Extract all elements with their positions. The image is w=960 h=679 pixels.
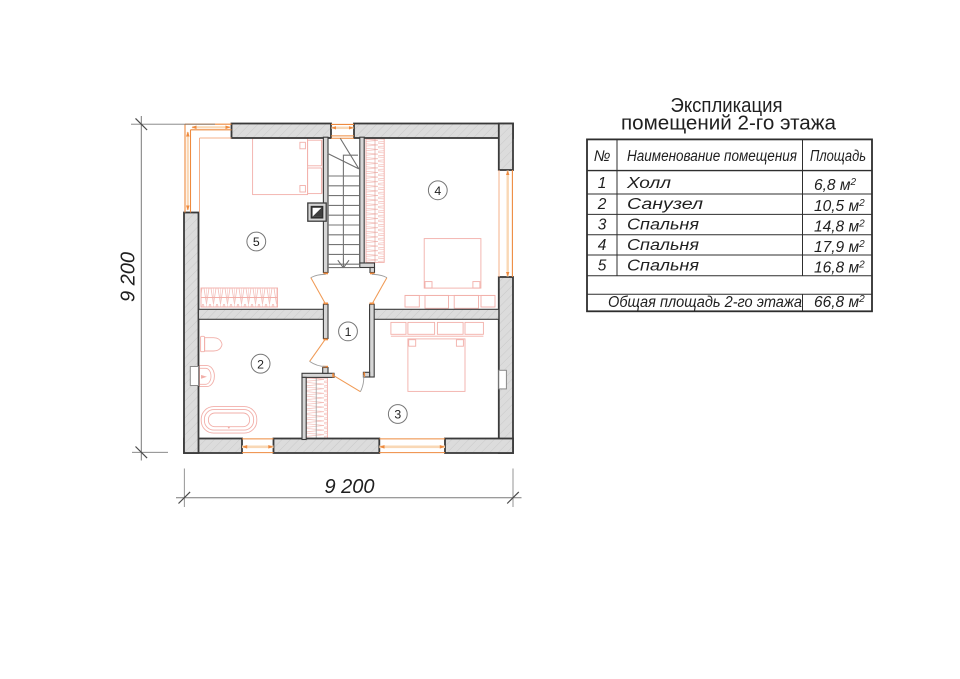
svg-text:Общая площадь 2-го этажа: Общая площадь 2-го этажа	[608, 294, 802, 311]
svg-text:Холл: Холл	[626, 175, 672, 192]
svg-text:№: №	[594, 148, 611, 165]
svg-text:2: 2	[597, 196, 607, 213]
svg-text:10,5 м2: 10,5 м2	[814, 198, 865, 215]
svg-text:Наименование помещения: Наименование помещения	[627, 148, 797, 165]
svg-text:9 200: 9 200	[118, 252, 140, 302]
svg-text:1: 1	[598, 175, 607, 192]
svg-text:2: 2	[257, 357, 264, 371]
svg-text:4: 4	[434, 184, 441, 198]
svg-text:5: 5	[598, 258, 607, 275]
svg-text:Площадь: Площадь	[810, 148, 866, 165]
svg-text:5: 5	[253, 235, 260, 249]
svg-text:3: 3	[598, 217, 607, 234]
svg-text:66,8 м2: 66,8 м2	[814, 294, 865, 311]
svg-text:17,9 м2: 17,9 м2	[814, 239, 865, 256]
svg-text:3: 3	[394, 408, 401, 422]
svg-text:4: 4	[598, 237, 607, 254]
svg-text:Спальня: Спальня	[627, 237, 699, 254]
svg-text:6,8 м2: 6,8 м2	[814, 177, 856, 194]
svg-text:Санузел: Санузел	[627, 196, 703, 213]
svg-text:помещений 2-го этажа: помещений 2-го этажа	[621, 113, 837, 135]
svg-text:Спальня: Спальня	[627, 258, 699, 275]
svg-text:1: 1	[345, 325, 352, 339]
svg-text:16,8 м2: 16,8 м2	[814, 260, 865, 277]
svg-text:Спальня: Спальня	[627, 217, 699, 234]
svg-text:9 200: 9 200	[324, 476, 374, 498]
svg-text:14,8 м2: 14,8 м2	[814, 219, 865, 236]
